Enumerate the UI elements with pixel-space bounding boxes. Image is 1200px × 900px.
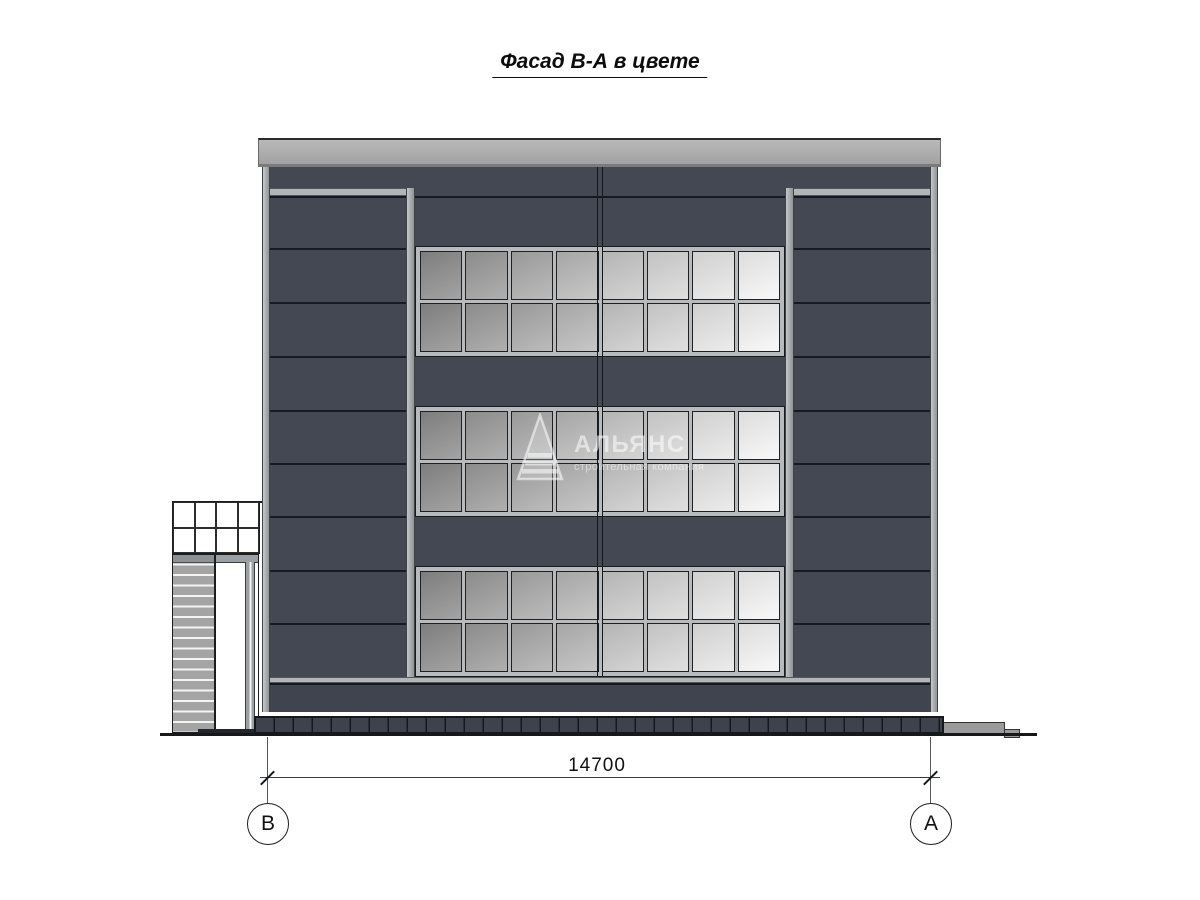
window-pane xyxy=(465,571,507,620)
window-pane xyxy=(647,411,689,460)
window-pane xyxy=(556,571,598,620)
window-pane xyxy=(692,251,734,300)
ground-line xyxy=(160,733,1037,736)
window-pane xyxy=(602,251,644,300)
window-pane xyxy=(465,303,507,352)
entrance-door xyxy=(215,554,259,733)
glazing-cell xyxy=(216,502,238,528)
panel-joint xyxy=(794,410,930,412)
window-pane xyxy=(647,463,689,512)
bottom-rail xyxy=(270,677,930,683)
plinth xyxy=(254,716,944,734)
glazing-cell xyxy=(195,528,217,554)
panel-joint xyxy=(270,302,406,304)
panel-joint xyxy=(794,463,930,465)
right-mullion xyxy=(785,188,794,677)
window-pane xyxy=(465,463,507,512)
left-mullion xyxy=(406,188,415,677)
glazing-cell xyxy=(173,528,195,554)
window-pane xyxy=(556,251,598,300)
window-pane xyxy=(511,571,553,620)
window-pane xyxy=(738,623,780,672)
window-pane xyxy=(556,623,598,672)
panel-joint xyxy=(270,410,406,412)
window-pane xyxy=(511,623,553,672)
window-pane xyxy=(692,411,734,460)
right-pilaster xyxy=(930,167,938,712)
window-pane xyxy=(511,303,553,352)
window-pane xyxy=(465,411,507,460)
window-pane xyxy=(420,463,462,512)
panel-joint xyxy=(794,302,930,304)
base-band xyxy=(270,683,930,712)
facade xyxy=(262,167,938,712)
window-pane xyxy=(647,571,689,620)
panel-joint xyxy=(794,516,930,518)
window-pane xyxy=(738,571,780,620)
window-pane xyxy=(692,571,734,620)
window-pane xyxy=(556,463,598,512)
axis-label-b: В xyxy=(261,812,275,836)
window-pane xyxy=(692,303,734,352)
window-pane xyxy=(602,623,644,672)
window-pane xyxy=(420,303,462,352)
stair-landing-edge xyxy=(173,555,214,563)
glazing-cell xyxy=(216,528,238,554)
left-wing-rail xyxy=(270,188,415,196)
panel-joint xyxy=(270,248,406,250)
dimension-value: 14700 xyxy=(537,755,657,777)
window-pane xyxy=(692,463,734,512)
window-pane xyxy=(647,251,689,300)
axis-marker-b: В xyxy=(247,803,289,845)
panel-joint xyxy=(270,516,406,518)
window-pane xyxy=(738,251,780,300)
window-pane xyxy=(465,623,507,672)
annex-glazing-grid xyxy=(172,501,260,554)
parapet xyxy=(258,138,941,167)
window-pane xyxy=(511,411,553,460)
window-pane xyxy=(465,251,507,300)
panel-joint xyxy=(270,570,406,572)
annex-stairs xyxy=(172,554,215,733)
center-mullion xyxy=(597,167,603,677)
glazing-cell xyxy=(173,502,195,528)
dimension-line xyxy=(260,777,940,778)
panel-joint xyxy=(270,463,406,465)
window-pane xyxy=(511,463,553,512)
panel-joint xyxy=(270,623,406,625)
window-pane xyxy=(647,623,689,672)
window-pane xyxy=(511,251,553,300)
window-pane xyxy=(602,571,644,620)
window-pane xyxy=(420,251,462,300)
glazing-cell xyxy=(195,502,217,528)
panel-joint xyxy=(794,570,930,572)
right-wing-rail xyxy=(785,188,930,196)
drawing-canvas: Фасад В-А в цвете 14700 В А xyxy=(0,0,1200,900)
window-pane xyxy=(602,463,644,512)
drawing-title: Фасад В-А в цвете xyxy=(492,50,707,78)
window-pane xyxy=(738,303,780,352)
axis-marker-a: А xyxy=(910,803,952,845)
left-pilaster xyxy=(262,167,270,712)
glazing-cell xyxy=(238,502,260,528)
window-pane xyxy=(692,623,734,672)
glazing-cell xyxy=(238,528,260,554)
window-pane xyxy=(602,303,644,352)
window-pane xyxy=(556,411,598,460)
door-jamb xyxy=(245,562,255,730)
window-pane xyxy=(420,623,462,672)
axis-line-b xyxy=(267,737,268,803)
panel-joint xyxy=(794,356,930,358)
window-pane xyxy=(738,411,780,460)
window-pane xyxy=(420,411,462,460)
panel-joint xyxy=(794,623,930,625)
window-pane xyxy=(420,571,462,620)
panel-joint xyxy=(270,356,406,358)
panel-joint xyxy=(794,248,930,250)
axis-line-a xyxy=(930,737,931,803)
axis-label-a: А xyxy=(924,812,938,836)
window-pane xyxy=(556,303,598,352)
window-pane xyxy=(738,463,780,512)
window-pane xyxy=(647,303,689,352)
window-pane xyxy=(602,411,644,460)
